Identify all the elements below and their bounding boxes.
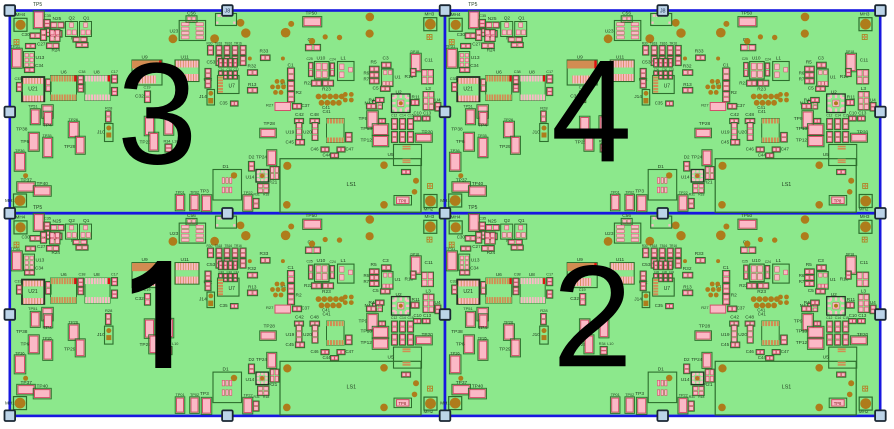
svg-text:J8: J8 bbox=[660, 9, 666, 15]
svg-text:J8: J8 bbox=[225, 9, 231, 15]
svg-text:3: 3 bbox=[117, 33, 198, 195]
svg-text:2: 2 bbox=[552, 235, 633, 397]
svg-text:4: 4 bbox=[551, 29, 632, 192]
